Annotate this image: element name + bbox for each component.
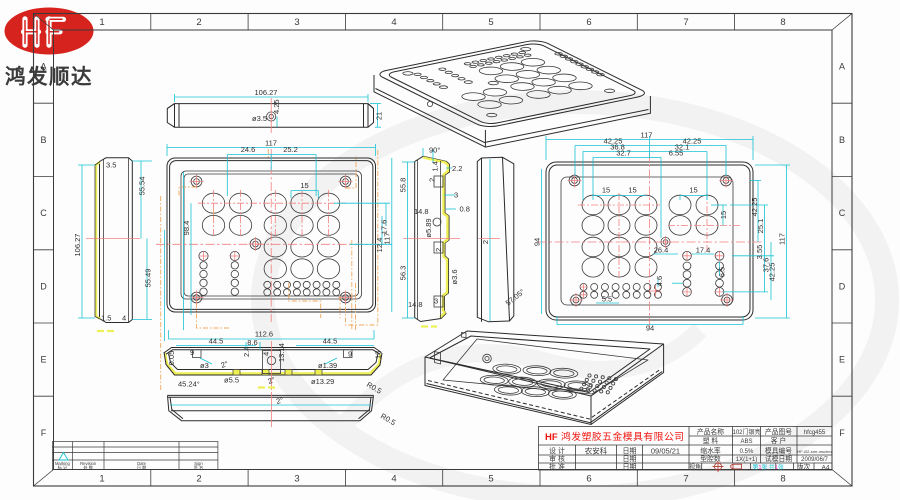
svg-text:09/05/21: 09/05/21 [651,447,680,456]
svg-text:45.24°: 45.24° [178,380,200,389]
svg-text:55.54: 55.54 [138,177,147,196]
svg-text:A: A [839,62,845,72]
svg-text:批 准: 批 准 [549,462,565,471]
svg-text:ø3.5: ø3.5 [252,114,267,123]
svg-text:3.5: 3.5 [106,161,116,170]
svg-text:4.25: 4.25 [272,99,281,114]
svg-text:日期: 日期 [623,455,637,463]
svg-text:21: 21 [375,112,384,120]
svg-text:98.4: 98.4 [182,221,191,236]
svg-text:hfcg455: hfcg455 [804,430,826,436]
svg-text:0.8: 0.8 [460,205,470,214]
svg-text:E: E [839,355,845,365]
svg-text:缩水率: 缩水率 [700,446,721,455]
svg-text:117: 117 [641,131,653,140]
svg-text:5.5: 5.5 [602,295,612,304]
svg-text:25.2: 25.2 [283,145,298,154]
svg-text:5: 5 [488,474,493,485]
svg-text:6: 6 [586,474,591,485]
svg-text:42.25: 42.25 [768,263,777,282]
svg-text:106.27: 106.27 [73,234,82,257]
svg-text:B: B [839,135,845,145]
svg-text:117: 117 [383,233,392,245]
svg-text:106.27: 106.27 [255,88,278,97]
svg-text:A4: A4 [822,465,830,472]
svg-text:C: C [839,208,846,218]
svg-text:日期: 日期 [623,463,637,471]
svg-text:试模日期: 试模日期 [765,454,792,463]
svg-text:ø1.39: ø1.39 [318,361,337,370]
svg-text:视角: 视角 [689,463,701,471]
svg-text:5: 5 [488,17,493,28]
svg-text:3: 3 [294,474,299,485]
svg-text:15: 15 [602,186,610,195]
svg-text:14.8: 14.8 [414,207,429,216]
svg-text:6: 6 [586,17,591,28]
svg-text:客 户: 客 户 [771,436,786,445]
svg-text:8: 8 [780,474,785,485]
svg-text:17.4: 17.4 [696,246,711,255]
svg-text:ABS: ABS [740,439,752,445]
svg-text:B: B [40,135,46,145]
svg-text:55.8: 55.8 [399,178,408,193]
svg-text:4: 4 [391,474,396,485]
svg-text:14.8: 14.8 [408,300,423,309]
svg-text:3: 3 [434,297,438,306]
svg-text:9: 9 [348,350,352,359]
svg-text:2.2: 2.2 [452,164,462,173]
svg-text:2.4: 2.4 [242,347,251,357]
svg-text:6.55: 6.55 [669,149,684,158]
svg-text:24.6: 24.6 [241,145,256,154]
svg-text:32.7: 32.7 [616,149,631,158]
svg-text:设 计: 设 计 [549,446,565,455]
svg-text:HF-i02-smr-mschm: HF-i02-smr-mschm [797,449,832,454]
svg-text:鸿发塑胶五金模具有限公司: 鸿发塑胶五金模具有限公司 [561,430,685,443]
svg-text:ø5.5: ø5.5 [224,376,239,385]
svg-text:产品名称: 产品名称 [697,427,724,436]
svg-text:0.5%: 0.5% [740,449,754,455]
svg-text:3.55: 3.55 [755,245,764,260]
svg-text:17.6: 17.6 [380,220,389,235]
svg-text:ø13.29: ø13.29 [311,377,334,386]
svg-text:56.3: 56.3 [399,266,408,281]
svg-text:4.6: 4.6 [655,276,664,286]
svg-text:25.1: 25.1 [756,219,765,234]
svg-text:9: 9 [190,348,194,357]
svg-text:26.4: 26.4 [654,246,669,255]
svg-text:0.05: 0.05 [167,351,176,366]
svg-text:F: F [41,428,47,438]
svg-text:产品图号: 产品图号 [765,427,792,436]
svg-text:版次: 版次 [797,462,811,471]
svg-text:日期: 日期 [623,447,637,455]
svg-text:7: 7 [683,17,688,28]
svg-text:44.5: 44.5 [209,337,224,346]
svg-text:15: 15 [628,186,636,195]
svg-text:ø3: ø3 [200,361,209,370]
svg-text:94: 94 [533,238,542,246]
svg-text:13.14: 13.14 [277,343,286,362]
svg-text:E: E [40,355,46,365]
svg-text:F: F [839,428,845,438]
svg-text:审 核: 审 核 [549,454,565,463]
svg-text:C: C [40,208,47,218]
svg-text:HF: HF [545,432,558,443]
svg-text:44.5: 44.5 [323,337,338,346]
svg-text:1.4: 1.4 [431,161,440,171]
svg-text:42.25: 42.25 [750,198,759,217]
svg-text:塑 料: 塑 料 [703,436,719,445]
svg-text:4: 4 [262,352,271,356]
svg-text:8: 8 [780,17,785,28]
svg-text:117: 117 [265,139,277,148]
svg-text:3: 3 [294,17,299,28]
svg-text:签 名: 签 名 [194,464,204,471]
svg-text:4: 4 [391,17,396,28]
svg-text:标 记: 标 记 [58,464,68,471]
svg-text:2: 2 [481,240,490,244]
svg-text:第1张 共1张: 第1张 共1张 [753,463,785,471]
svg-text:2: 2 [434,248,443,252]
svg-text:1: 1 [99,474,104,485]
svg-text:ø5.89: ø5.89 [424,218,433,237]
svg-text:13: 13 [374,351,383,359]
svg-text:处 数: 处 数 [83,464,93,471]
svg-text:ø3.6: ø3.6 [450,269,459,284]
svg-text:6.5: 6.5 [718,267,727,277]
svg-text:2: 2 [428,178,437,182]
svg-text:D: D [40,281,47,291]
svg-text:1.5: 1.5 [101,314,111,323]
svg-text:7: 7 [683,474,688,485]
svg-text:模具编号: 模具编号 [765,446,792,455]
svg-text:农安科: 农安科 [585,446,608,456]
svg-text:4: 4 [122,314,126,323]
svg-text:2009/06/7: 2009/06/7 [801,457,828,463]
svg-text:15: 15 [300,181,308,190]
svg-text:2: 2 [196,17,201,28]
svg-text:3: 3 [454,191,458,200]
svg-text:102门银亮: 102门银亮 [732,428,760,436]
svg-text:鸿发顺达: 鸿发顺达 [5,65,93,89]
svg-text:55.49: 55.49 [144,269,153,288]
svg-text:15: 15 [689,186,697,195]
svg-text:94: 94 [646,324,654,333]
svg-text:2: 2 [196,474,201,485]
svg-text:D: D [839,281,846,291]
svg-text:1X(1+1): 1X(1+1) [736,457,758,463]
svg-text:15: 15 [719,211,728,219]
svg-text:117: 117 [778,233,787,245]
svg-text:8.6: 8.6 [247,338,257,347]
svg-text:1: 1 [99,17,104,28]
svg-text:90°: 90° [429,146,440,155]
